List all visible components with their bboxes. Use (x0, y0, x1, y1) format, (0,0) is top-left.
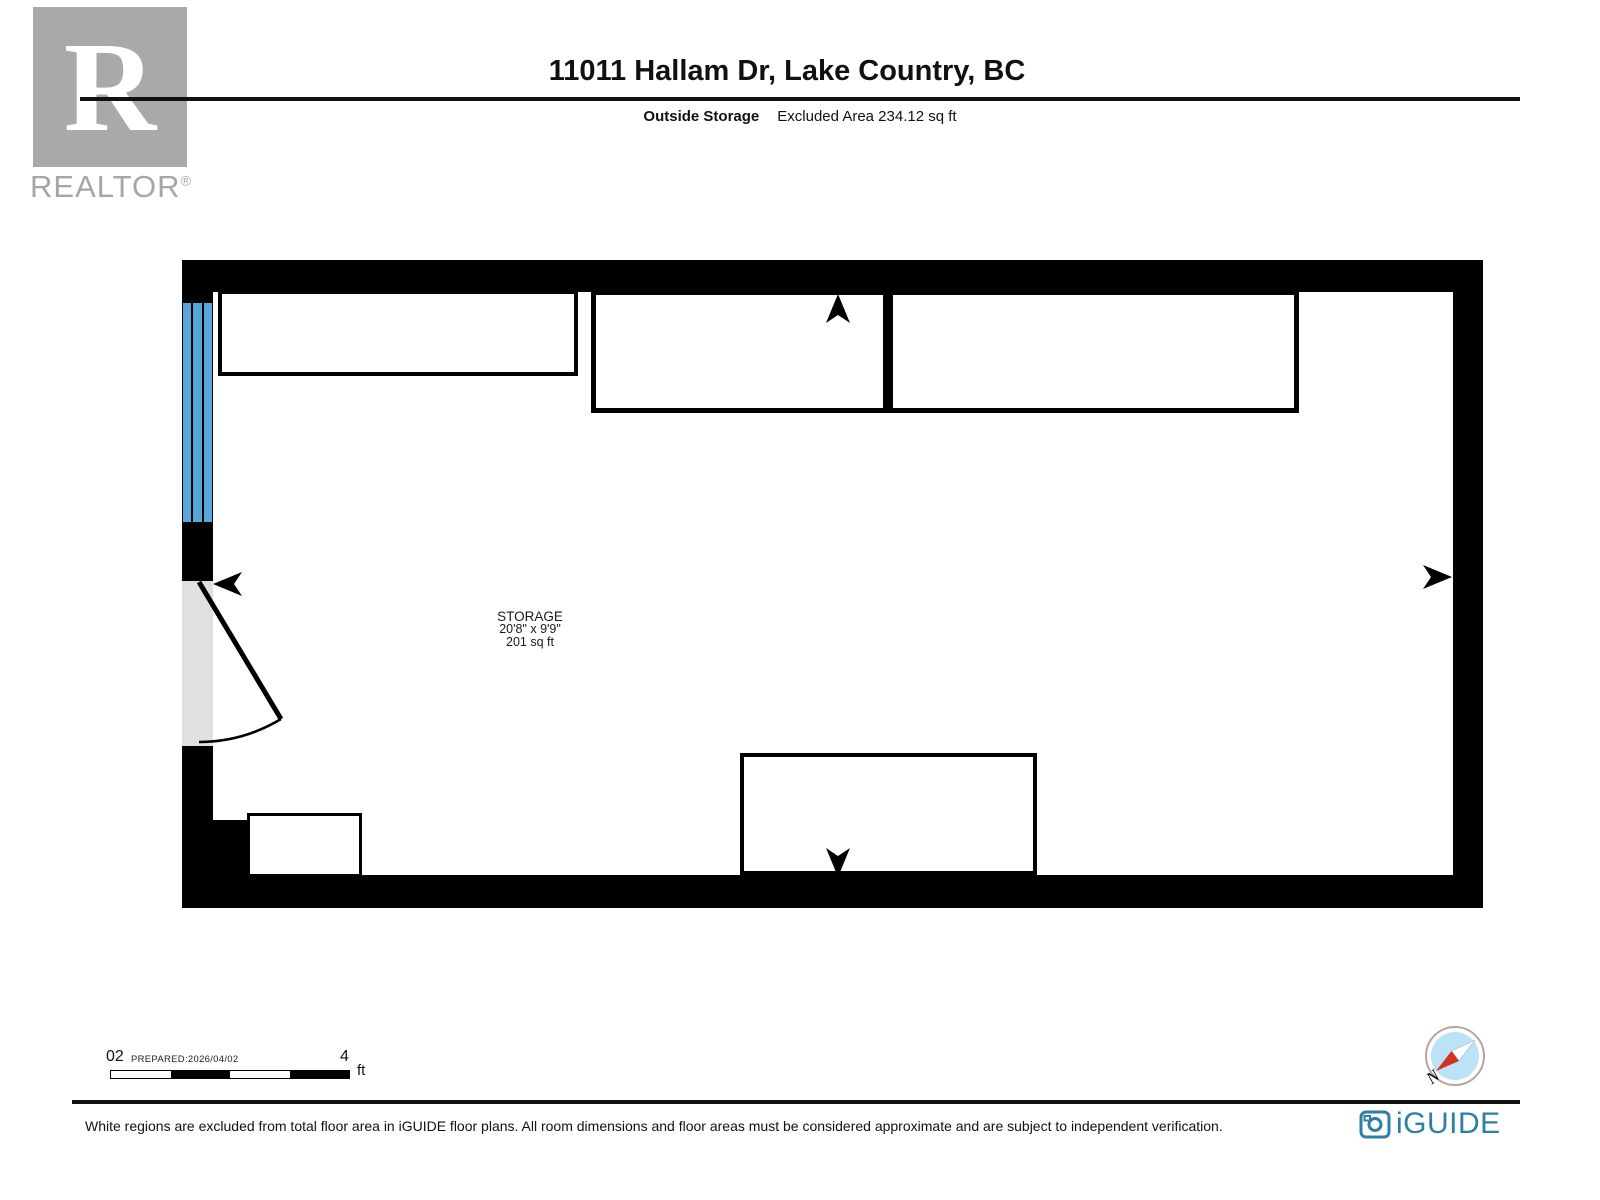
window (182, 302, 213, 523)
floor-name: Outside Storage (643, 108, 759, 125)
stair-right-box (888, 290, 1299, 413)
scale-segment (111, 1071, 171, 1078)
registered-mark: ® (181, 173, 192, 189)
wall-left-upper (182, 260, 213, 302)
excluded-area-label: Excluded Area 234.12 sq ft (777, 108, 956, 125)
realtor-wordmark: REALTOR® (30, 169, 192, 205)
scale-segment (230, 1071, 290, 1078)
compass-icon: N (1422, 1027, 1484, 1088)
footer-disclaimer: White regions are excluded from total fl… (85, 1118, 1223, 1134)
counter-box (218, 290, 578, 376)
footer-divider (72, 1100, 1520, 1104)
compass-outer-ring (1426, 1027, 1484, 1085)
compass-face (1431, 1032, 1479, 1080)
scale-unit-label: ft (357, 1062, 365, 1079)
scale-zero-label: 02 (106, 1048, 124, 1066)
scale-segment (290, 1071, 350, 1078)
wall-corner-step (213, 820, 247, 908)
iguide-wordmark: iGUIDE (1396, 1107, 1501, 1141)
wall-right (1453, 260, 1483, 908)
wall-left-lower (182, 746, 213, 908)
realtor-r-icon: R (64, 23, 156, 151)
compass-needle-south (1452, 1040, 1476, 1061)
iguide-logo: iGUIDE (1358, 1107, 1501, 1141)
plan-overlay: N (0, 0, 1600, 1200)
entry-arrow-right-icon (1423, 565, 1452, 589)
room-label: STORAGE 20'8" x 9'9" 201 sq ft (497, 610, 563, 649)
realtor-wordmark-text: REALTOR (30, 169, 181, 204)
scale-segment (171, 1071, 231, 1078)
floorplan-page: R REALTOR® 11011 Hallam Dr, Lake Country… (0, 0, 1600, 1200)
small-corner-box (247, 813, 362, 877)
door-opening (182, 581, 213, 746)
stair-left-box (591, 290, 888, 413)
entry-arrow-left-icon (213, 572, 242, 596)
scale-bar (110, 1070, 350, 1079)
prepared-date-label: PREPARED:2026/04/02 (131, 1054, 238, 1065)
page-title: 11011 Hallam Dr, Lake Country, BC (549, 55, 1026, 88)
title-divider (80, 97, 1520, 101)
wall-bottom (182, 875, 1483, 908)
room-area: 201 sq ft (497, 636, 563, 649)
scale-max-label: 4 (340, 1048, 349, 1066)
wall-top (182, 260, 1483, 292)
wall-left-mid (182, 523, 213, 581)
bottom-center-box (740, 753, 1037, 875)
realtor-logo: R (33, 7, 187, 167)
subtitle: Outside Storage Excluded Area 234.12 sq … (643, 108, 956, 125)
compass-needle-north (1436, 1051, 1459, 1071)
compass-north-label: N (1422, 1065, 1445, 1089)
camera-icon (1358, 1108, 1392, 1140)
